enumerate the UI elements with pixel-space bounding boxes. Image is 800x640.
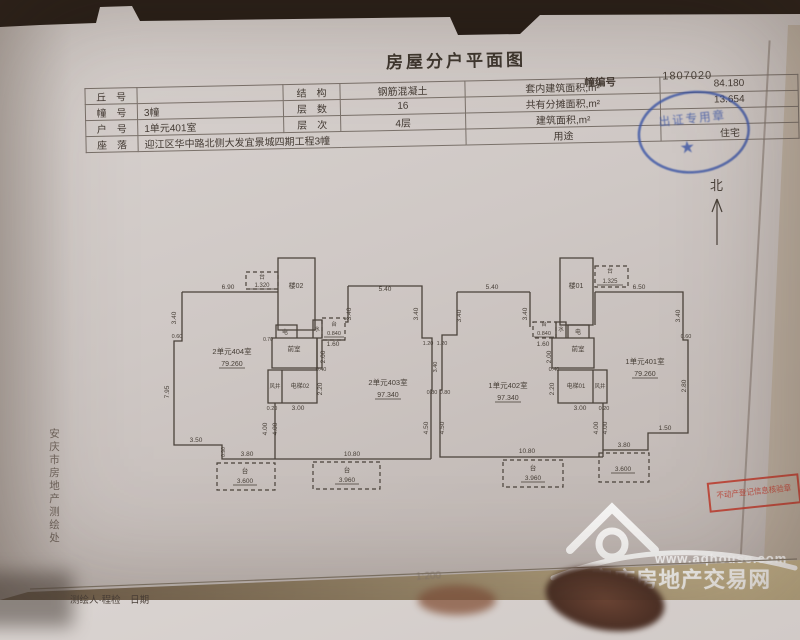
svg-text:0.20: 0.20 — [599, 406, 610, 412]
svg-text:3.50: 3.50 — [190, 437, 203, 444]
svg-text:2单元404室: 2单元404室 — [212, 346, 252, 356]
svg-text:电: 电 — [575, 328, 581, 336]
svg-text:0.80: 0.80 — [440, 390, 451, 396]
svg-text:4.50: 4.50 — [439, 421, 446, 434]
unit-404-walls — [174, 292, 431, 459]
blue-stamp-text: 出证专用章 — [658, 108, 727, 129]
star-icon: ★ — [679, 137, 696, 157]
unit-label: 户 号 — [86, 120, 138, 137]
building-no-value: 1807020 — [662, 70, 712, 83]
blue-round-stamp: 出证专用章 ★ — [623, 79, 766, 188]
floor-plan-drawing: 台1.320楼026.903.400.607.953.500.903.8010.… — [140, 250, 700, 500]
svg-text:台: 台 — [331, 320, 337, 328]
level-label: 层 次 — [284, 116, 341, 133]
floors-label: 层 数 — [283, 100, 340, 117]
svg-text:97.340: 97.340 — [377, 392, 399, 399]
svg-text:3.40: 3.40 — [675, 309, 682, 322]
svg-text:0.840: 0.840 — [537, 331, 551, 337]
surveyor-cutoff-text: 测绘人·程检 日期 — [70, 592, 149, 606]
svg-text:台: 台 — [541, 320, 547, 328]
scale-note: 1:200 — [416, 570, 442, 582]
desk-edge-dark — [0, 0, 800, 40]
svg-text:2单元403室: 2单元403室 — [368, 377, 408, 387]
svg-text:5.40: 5.40 — [486, 284, 499, 291]
svg-text:2.20: 2.20 — [549, 382, 556, 395]
svg-text:电: 电 — [282, 328, 288, 336]
svg-text:3.80: 3.80 — [618, 442, 631, 449]
svg-text:风井: 风井 — [594, 382, 606, 390]
svg-text:6.50: 6.50 — [633, 284, 646, 291]
svg-text:4.50: 4.50 — [423, 421, 430, 434]
svg-text:0.60: 0.60 — [681, 334, 692, 340]
svg-text:1.60: 1.60 — [537, 341, 550, 348]
svg-text:0.40: 0.40 — [316, 367, 327, 373]
svg-text:1.20: 1.20 — [437, 341, 448, 347]
stair-02-walls — [278, 258, 315, 330]
building-label: 幢 号 — [85, 104, 137, 121]
svg-text:1.60: 1.60 — [327, 341, 340, 348]
svg-text:3.40: 3.40 — [433, 362, 439, 373]
svg-text:0.70: 0.70 — [263, 337, 273, 343]
svg-text:3.960: 3.960 — [525, 475, 542, 482]
address-label: 座 落 — [86, 136, 138, 153]
photo-of-document: { "colors":{"paper":"#cfc8c5","ink":"#4a… — [0, 0, 800, 600]
svg-text:0.20: 0.20 — [267, 406, 278, 412]
svg-text:4.00: 4.00 — [262, 422, 269, 435]
svg-text:3.960: 3.960 — [339, 477, 356, 484]
svg-text:3.600: 3.600 — [615, 466, 632, 473]
structure-label: 结 构 — [283, 84, 340, 101]
document-title: 房屋分户平面图 — [336, 44, 576, 74]
agency-side-text: 安庆市房地产测绘处 — [47, 428, 62, 568]
svg-text:电梯01: 电梯01 — [567, 382, 586, 390]
svg-text:5.40: 5.40 — [379, 286, 392, 293]
svg-text:3.40: 3.40 — [456, 309, 463, 322]
svg-text:4.00: 4.00 — [602, 421, 609, 434]
svg-text:0.60: 0.60 — [172, 334, 183, 340]
svg-text:97.340: 97.340 — [497, 395, 519, 402]
svg-text:楼01: 楼01 — [569, 281, 584, 290]
svg-text:6.90: 6.90 — [222, 284, 235, 291]
svg-text:4.00: 4.00 — [272, 422, 279, 435]
svg-text:水: 水 — [558, 325, 564, 333]
svg-text:7.95: 7.95 — [164, 385, 171, 398]
svg-text:1单元401室: 1单元401室 — [625, 356, 665, 366]
svg-text:2.80: 2.80 — [681, 379, 688, 392]
svg-text:3.80: 3.80 — [241, 451, 254, 458]
svg-text:台: 台 — [530, 463, 537, 472]
svg-text:台: 台 — [344, 465, 351, 474]
stair-01-walls — [560, 258, 593, 325]
qiuhao-label: 丘 号 — [85, 88, 137, 105]
svg-text:3.40: 3.40 — [346, 307, 353, 320]
svg-text:1.50: 1.50 — [659, 425, 672, 432]
svg-text:水: 水 — [314, 325, 320, 333]
svg-text:2.00: 2.00 — [546, 350, 553, 363]
svg-text:0.40: 0.40 — [549, 367, 560, 373]
svg-text:1.320: 1.320 — [254, 283, 270, 289]
svg-text:0.840: 0.840 — [327, 331, 341, 337]
svg-text:79.260: 79.260 — [221, 361, 243, 368]
svg-text:4.00: 4.00 — [593, 421, 600, 434]
svg-text:台: 台 — [259, 273, 265, 281]
svg-text:风井: 风井 — [269, 382, 281, 390]
svg-text:楼02: 楼02 — [289, 281, 304, 290]
svg-text:1单元402室: 1单元402室 — [488, 380, 528, 390]
svg-text:前室: 前室 — [288, 344, 302, 353]
plan-dimension-labels: 台1.320楼026.903.400.607.953.500.903.8010.… — [164, 267, 691, 485]
svg-text:前室: 前室 — [572, 344, 586, 353]
svg-text:1.325: 1.325 — [602, 279, 618, 285]
svg-text:0.90: 0.90 — [221, 447, 227, 457]
svg-text:3.00: 3.00 — [574, 405, 587, 412]
svg-text:3.00: 3.00 — [292, 405, 305, 412]
svg-text:0.80: 0.80 — [427, 390, 438, 396]
finger-shadow-small — [418, 585, 496, 615]
svg-text:电梯02: 电梯02 — [291, 382, 310, 390]
north-indicator: 北 — [690, 175, 750, 253]
svg-text:3.40: 3.40 — [413, 307, 420, 320]
svg-text:2.00: 2.00 — [320, 350, 327, 363]
svg-text:1.20: 1.20 — [423, 341, 434, 347]
svg-text:3.40: 3.40 — [522, 307, 529, 320]
svg-text:2.20: 2.20 — [317, 382, 324, 395]
svg-text:10.80: 10.80 — [344, 451, 361, 458]
svg-text:3.40: 3.40 — [171, 311, 178, 324]
svg-text:台: 台 — [607, 267, 613, 275]
svg-text:10.80: 10.80 — [519, 448, 536, 455]
svg-text:3.600: 3.600 — [237, 478, 254, 485]
svg-text:台: 台 — [242, 466, 249, 475]
building-no-label: 幢编号 — [584, 74, 616, 90]
svg-text:79.260: 79.260 — [634, 371, 656, 378]
